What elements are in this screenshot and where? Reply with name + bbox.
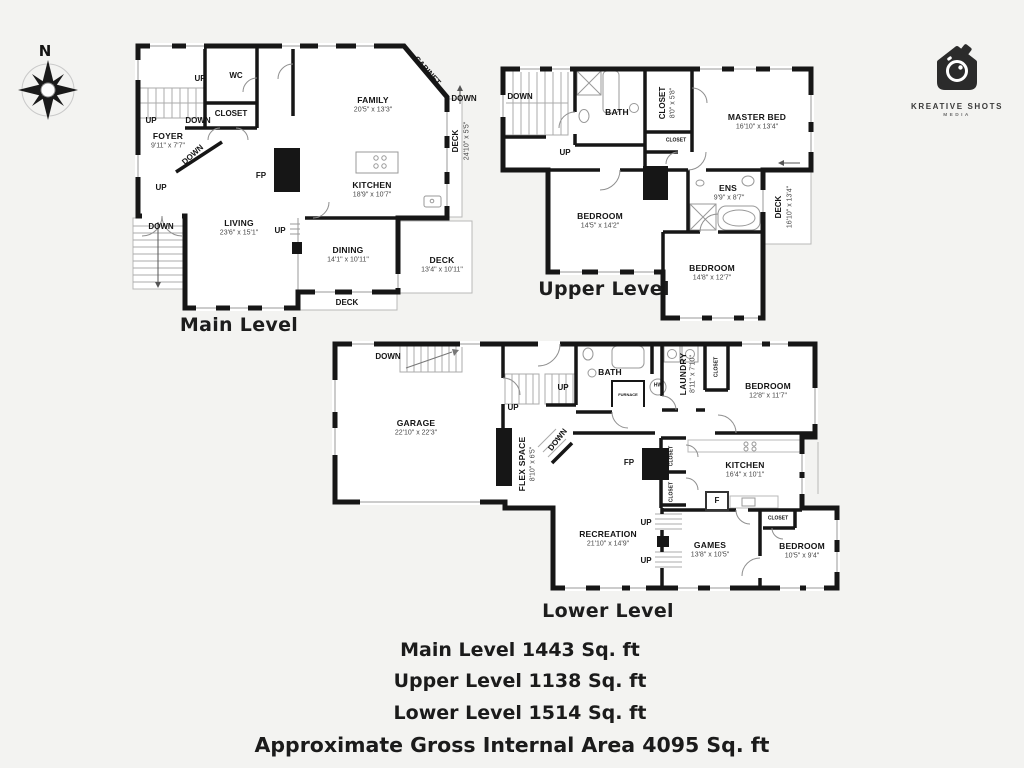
lower-label-8-11-x-7-10: 8'11" x 7'10" <box>690 355 697 393</box>
lower-label-kitchen: KITCHEN <box>725 461 764 470</box>
upper-label-bath: BATH <box>605 108 629 117</box>
kreative-shots-logo: KREATIVE SHOTS MEDIA <box>898 44 1016 118</box>
main-label-deck: DECK <box>430 256 455 265</box>
lower-label-up: UP <box>640 557 651 565</box>
lower-label-bedroom: BEDROOM <box>779 542 825 551</box>
main-label-family: FAMILY <box>357 96 389 105</box>
main-label-wc: WC <box>229 72 242 80</box>
main-label-9-11-x-7-7: 9'11" x 7'7" <box>151 143 185 150</box>
lower-label-up: UP <box>507 404 518 412</box>
main-label-down: DOWN <box>148 223 173 231</box>
main-label-down: DOWN <box>185 117 210 125</box>
compass-north-label: N <box>39 42 52 60</box>
summary-lower-level: Lower Level 1514 Sq. ft <box>8 702 1024 724</box>
lower-label-closet: CLOSET <box>715 357 720 377</box>
upper-label-bedroom: BEDROOM <box>577 212 623 221</box>
main-label-down: DOWN <box>451 95 476 103</box>
main-label-kitchen: KITCHEN <box>352 181 391 190</box>
lower-label-13-8-x-10-5: 13'8" x 10'5" <box>691 552 729 559</box>
upper-level-title: Upper Level <box>538 278 670 300</box>
lower-label-closet: CLOSET <box>670 446 675 466</box>
main-level-title: Main Level <box>180 314 298 336</box>
main-label-up: UP <box>274 227 285 235</box>
logo-brand-text: KREATIVE SHOTS <box>898 102 1016 111</box>
main-label-up: UP <box>145 117 156 125</box>
main-label-deck: DECK <box>336 299 359 307</box>
logo-sub-text: MEDIA <box>898 113 1016 118</box>
lower-label-down: DOWN <box>375 353 400 361</box>
lower-label-bath: BATH <box>598 368 622 377</box>
main-label-up: UP <box>194 75 205 83</box>
upper-label-deck: DECK <box>775 196 783 219</box>
summary-upper-level: Upper Level 1138 Sq. ft <box>8 670 1024 692</box>
upper-label-bedroom: BEDROOM <box>689 264 735 273</box>
main-label-24-10-x-5-5: 24'10" x 5'5" <box>464 122 471 160</box>
lower-label-closet: CLOSET <box>670 482 675 502</box>
upper-label-master-bed: MASTER BED <box>728 113 786 122</box>
upper-label-8-0-x-5-8: 8'0" x 5'8" <box>670 88 677 119</box>
summary-main-level: Main Level 1443 Sq. ft <box>8 639 1024 661</box>
lower-label-up: UP <box>640 519 651 527</box>
upper-label-closet: CLOSET <box>659 87 667 119</box>
lower-label-21-10-x-14-9: 21'10" x 14'9" <box>587 541 629 548</box>
lower-label-flex-space: FLEX SPACE <box>518 437 527 492</box>
lower-label-games: GAMES <box>694 541 726 550</box>
lower-label-laundry: LAUNDRY <box>679 353 688 396</box>
main-label-23-6-x-15-1: 23'6" x 15'1" <box>220 230 258 237</box>
upper-label-16-10-x-13-4: 16'10" x 13'4" <box>736 124 778 131</box>
lower-label-closet: CLOSET <box>768 517 788 522</box>
upper-label-ens: ENS <box>719 184 737 193</box>
upper-label-up: UP <box>559 149 570 157</box>
lower-level-title: Lower Level <box>542 600 674 622</box>
main-label-14-1-x-10-11: 14'1" x 10'11" <box>327 257 369 264</box>
lower-label-hw: HW <box>654 384 662 389</box>
lower-label-f: F <box>715 497 720 505</box>
main-label-up: UP <box>155 184 166 192</box>
summary-total-area: Approximate Gross Internal Area 4095 Sq.… <box>0 733 1024 757</box>
upper-label-14-8-x-12-7: 14'8" x 12'7" <box>693 275 731 282</box>
main-label-cabinet: CABINET <box>412 55 442 87</box>
upper-label-down: DOWN <box>507 93 532 101</box>
lower-label-bedroom: BEDROOM <box>745 382 791 391</box>
floorplan-sheet: UPWCCLOSETDOWNUPFOYER9'11" x 7'7"DOWNUPD… <box>0 0 1024 768</box>
main-label-fp: FP <box>256 172 266 180</box>
upper-label-16-10-x-13-4: 16'10" x 13'4" <box>787 186 794 228</box>
lower-label-10-5-x-9-4: 10'5" x 9'4" <box>785 553 820 560</box>
lower-label-recreation: RECREATION <box>579 530 637 539</box>
main-label-dining: DINING <box>333 246 364 255</box>
main-label-18-9-x-10-7: 18'9" x 10'7" <box>353 192 391 199</box>
upper-label-closet: CLOSET <box>666 139 686 144</box>
lower-label-up: UP <box>557 384 568 392</box>
main-label-20-5-x-13-3: 20'5" x 13'3" <box>354 107 392 114</box>
main-label-deck: DECK <box>452 130 460 153</box>
lower-label-garage: GARAGE <box>397 419 436 428</box>
upper-label-14-5-x-14-2: 14'5" x 14'2" <box>581 223 619 230</box>
camera-house-icon <box>935 44 979 92</box>
main-label-living: LIVING <box>224 219 254 228</box>
lower-label-12-8-x-11-7: 12'8" x 11'7" <box>749 393 787 400</box>
lower-label-fp: FP <box>624 459 634 467</box>
lower-label-8-10-x-6-5: 8'10" x 6'5" <box>530 447 537 482</box>
lower-label-16-4-x-10-1: 16'4" x 10'1" <box>726 472 764 479</box>
lower-label-down: DOWN <box>547 428 569 453</box>
lower-label-furnace: FURNACE <box>618 393 638 397</box>
lower-label-22-10-x-22-3: 22'10" x 22'3" <box>395 430 437 437</box>
main-label-closet: CLOSET <box>215 110 247 118</box>
main-label-foyer: FOYER <box>153 132 183 141</box>
upper-label-9-9-x-8-7: 9'9" x 8'7" <box>714 195 745 202</box>
main-label-13-4-x-10-11: 13'4" x 10'11" <box>421 267 463 274</box>
